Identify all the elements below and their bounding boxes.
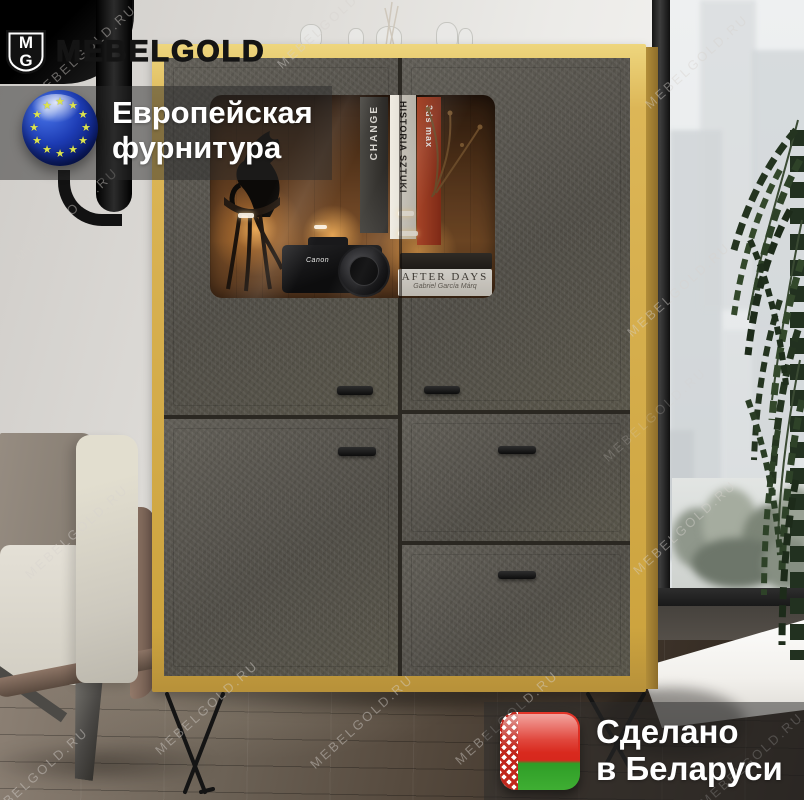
book-flat-white: AFTER DAYS Gabriel García Márq [398,269,492,296]
eu-star-icon: ★ [41,100,53,112]
eu-star-icon: ★ [28,122,40,134]
camera: Canon [282,237,394,295]
eu-star-icon: ★ [54,96,66,108]
sofa-leg [57,675,107,781]
made-in-line2: в Беларуси [596,751,783,788]
book-spine-text: CHANGE [369,97,380,160]
sofa-arm-cushion [76,435,138,683]
cabinet-drawer-upper [402,414,630,541]
book-spine-text: 3ds max [424,97,434,148]
branch-decor [422,97,492,207]
eu-star-icon: ★ [80,122,92,134]
belarus-flag-colors [518,712,580,790]
door-handle [424,386,460,394]
made-in-line1: Сделано [596,714,783,751]
light-glint [238,213,254,218]
book-spine-text: HISTORIA SZTUKI [398,95,408,194]
camera-body [282,245,382,293]
sofa [0,425,160,785]
mg-shield-icon: M G [4,28,48,76]
cabinet-drawer-lower [402,545,630,676]
brand-name: MEBELGOLD [56,35,266,69]
eu-badge-line2: фурнитура [112,131,313,166]
brand-logo: M G MEBELGOLD [4,28,266,76]
book-flat-dark [400,253,492,269]
product-image: Canon CHANGE HISTORIA SZTUKI 3ds max [0,0,804,800]
door-seam-over-glass [399,95,402,298]
camera-lens [338,245,390,297]
door-handle [337,386,373,395]
book-spine: 3ds max [417,97,441,245]
eu-star-icon: ★ [67,144,79,156]
eu-star-icon: ★ [54,148,66,160]
camera-top [308,237,348,249]
plant [630,100,804,680]
diffuser-reeds [376,0,406,46]
drawer-handle [498,446,536,454]
book-title: AFTER DAYS [398,271,492,283]
monogram-g: G [19,51,32,70]
eu-star-icon: ★ [77,109,89,121]
eu-badge-line1: Европейская [112,96,313,131]
cabinet-leg-left [157,692,232,797]
book-author: Gabriel García Márq [398,283,492,290]
bowl-stand [220,191,284,295]
belarus-flag-ornament [500,712,518,790]
made-in-label: Сделано в Беларуси [596,714,783,788]
door-handle [338,447,376,456]
light-glint [398,211,414,216]
camera-lens-inner [349,256,379,286]
light-glint [398,231,418,236]
glass-right-tint [401,95,495,298]
cabinet-door-bottom-left [164,419,398,676]
book-spine: CHANGE [360,97,388,233]
belarus-flag-icon [500,712,580,790]
monogram-m: M [19,33,33,52]
eu-badge-label: Европейская фурнитура [112,96,313,165]
book-spine: HISTORIA SZTUKI [390,95,416,239]
light-glint [314,225,327,229]
drawer-handle [498,571,536,579]
eu-flag-sphere-icon: ★ ★ ★ ★ ★ ★ ★ ★ ★ ★ ★ ★ [22,90,98,166]
camera-brand-label: Canon [306,257,329,264]
eu-star-icon: ★ [31,135,43,147]
